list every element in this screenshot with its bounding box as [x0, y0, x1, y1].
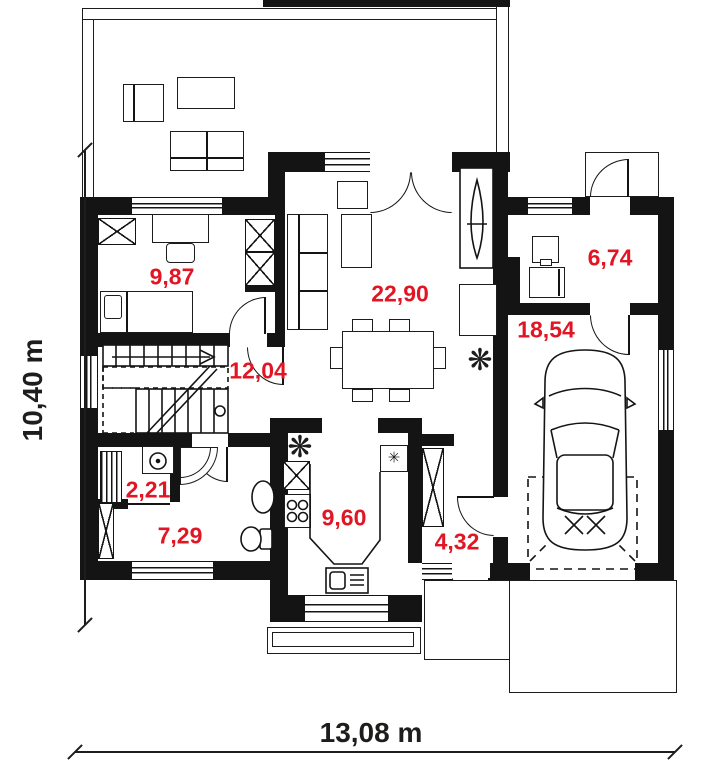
- kitchen-sink: [326, 568, 368, 593]
- room-label-living: 22,90: [371, 281, 429, 308]
- room-label-vestibule: 4,32: [435, 529, 480, 556]
- car: [535, 350, 635, 550]
- overall-width-label: 13,08 m: [320, 717, 423, 749]
- room-label-bedroom: 9,87: [150, 264, 195, 291]
- floor-plan: ❋ ✳ ❋: [0, 0, 714, 768]
- dimension-line-horizontal: [75, 751, 675, 753]
- room-label-utility: 6,74: [588, 245, 633, 272]
- dimension-line-vertical: [84, 150, 86, 625]
- fireplace: [460, 168, 493, 268]
- washing-machine-drum: [150, 453, 166, 469]
- plan-details: [0, 0, 714, 768]
- room-label-laundry: 2,21: [126, 477, 171, 504]
- hob-burners: [288, 501, 308, 522]
- overall-depth-label: 10,40 m: [17, 339, 49, 442]
- bathroom-sink: [252, 481, 274, 513]
- staircase: [103, 345, 228, 437]
- room-label-hall: 12,04: [229, 358, 287, 385]
- room-label-bathroom: 7,29: [158, 523, 203, 550]
- room-label-garage: 18,54: [517, 317, 575, 344]
- toilet: [241, 527, 272, 551]
- room-label-kitchen: 9,60: [322, 505, 367, 532]
